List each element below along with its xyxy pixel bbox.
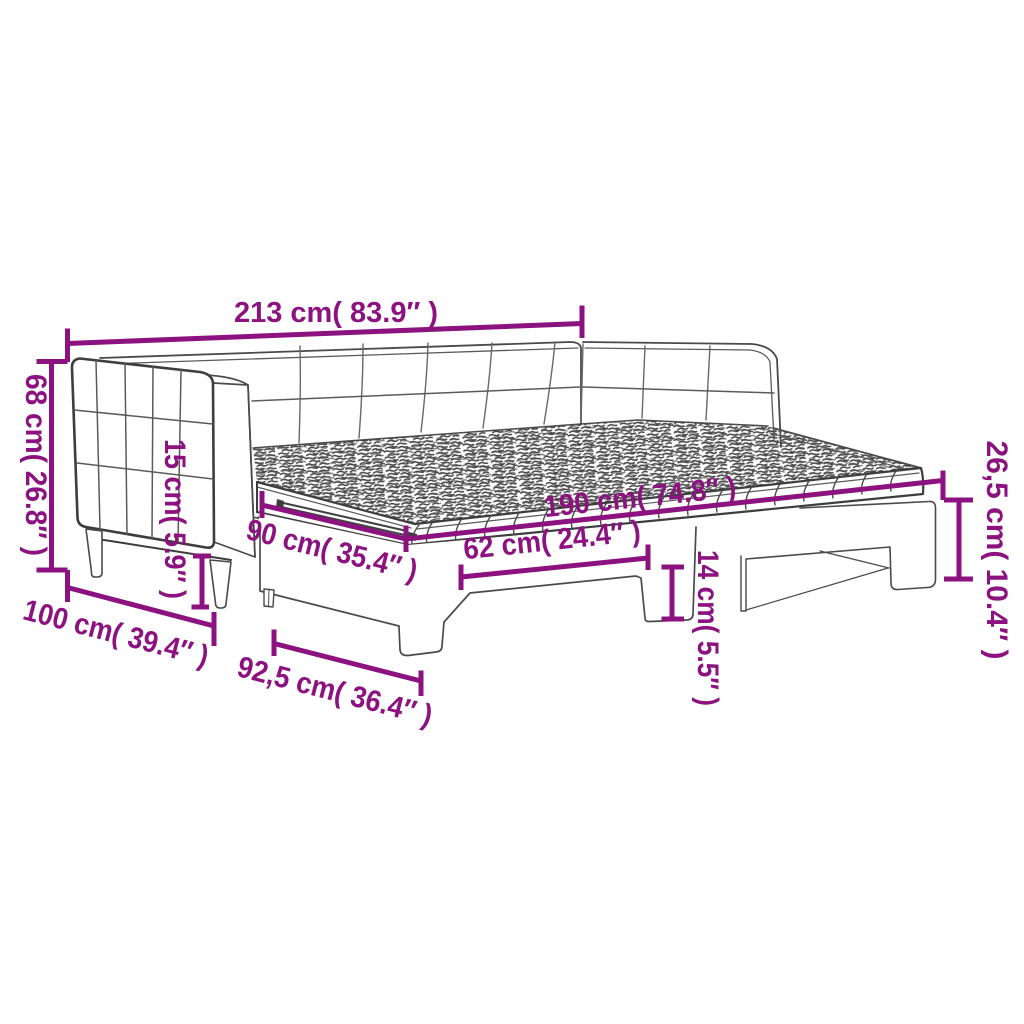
- svg-text:213 cm( 83.9″ ): 213 cm( 83.9″ ): [234, 297, 438, 329]
- svg-text:14 cm( 5.5″ ): 14 cm( 5.5″ ): [691, 550, 724, 706]
- svg-text:15 cm( 5.9″ ): 15 cm( 5.9″ ): [158, 439, 191, 599]
- svg-text:68 cm( 26.8″ ): 68 cm( 26.8″ ): [19, 374, 52, 556]
- svg-text:26,5 cm( 10.4″ ): 26,5 cm( 10.4″ ): [980, 441, 1013, 660]
